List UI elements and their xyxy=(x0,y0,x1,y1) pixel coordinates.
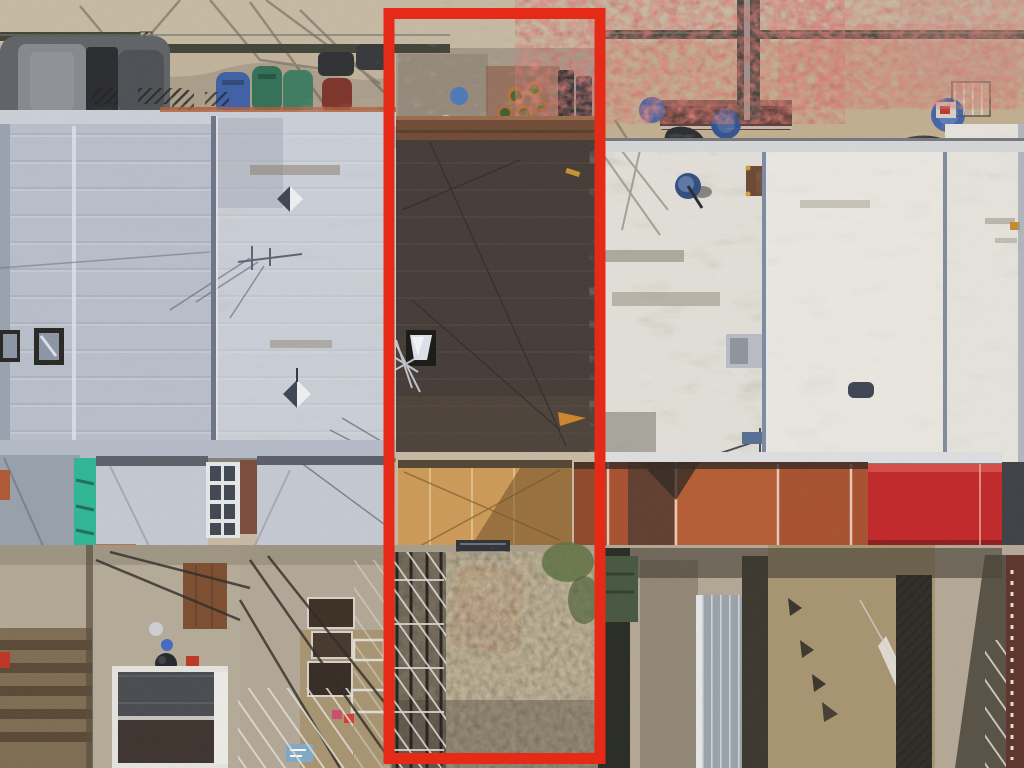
aerial-photo xyxy=(0,0,1024,768)
aerial-photo-canvas xyxy=(0,0,1024,768)
photo-grain xyxy=(0,0,1024,768)
